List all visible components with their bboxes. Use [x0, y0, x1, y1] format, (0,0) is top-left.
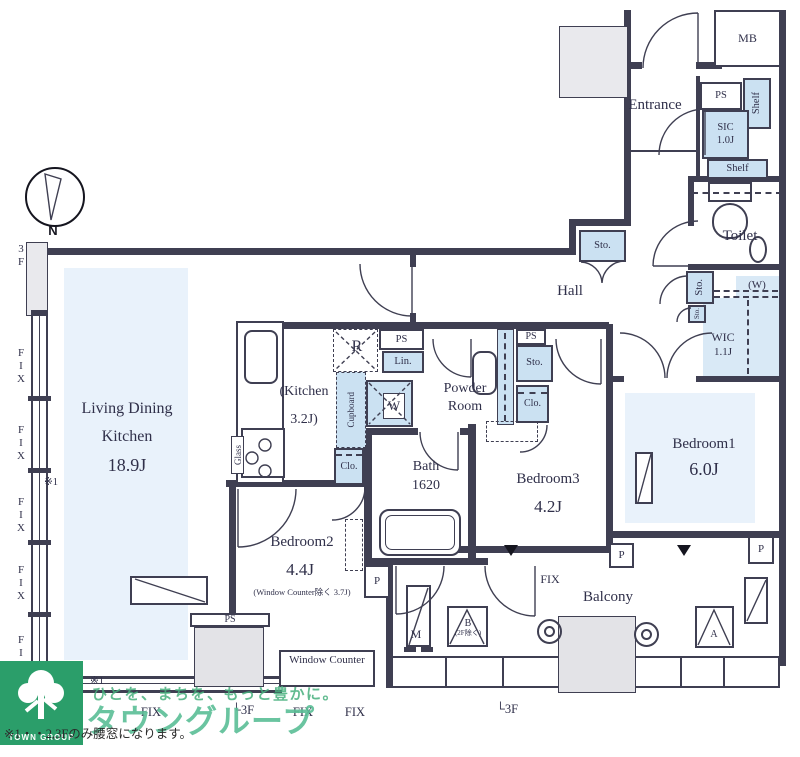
shelf-label: Shelf [726, 163, 748, 175]
floor-plan: PS Window Counter MB PS Shelf SIC 1.0J S… [0, 0, 800, 757]
floor-marker: └3F [488, 703, 526, 717]
wall [46, 248, 576, 255]
window-glass-line [39, 316, 40, 690]
stove [241, 428, 285, 478]
linen-closet: Lin. [382, 351, 424, 373]
fix-marker: FIX [10, 347, 26, 386]
ldk-label-2: Kitchen [67, 428, 187, 446]
powder-label-2: Room [415, 399, 515, 414]
sic-size: 1.0J [717, 135, 734, 147]
hanger-dash [518, 392, 547, 394]
wall [456, 546, 610, 553]
wall [779, 10, 786, 666]
pillar-p: P [609, 543, 634, 568]
kitchen-sink [244, 330, 278, 384]
fix-marker: FIX [10, 564, 26, 603]
sto-label: Sto. [693, 308, 701, 319]
wall [688, 176, 694, 226]
hall-storage: Sto. [579, 230, 626, 262]
hanger-pipe-dash [714, 290, 778, 292]
window-mullion [28, 468, 51, 473]
panel [635, 452, 653, 504]
bedroom3-label: Bedroom3 [498, 471, 598, 488]
sto-label: Sto. [594, 240, 611, 252]
panel-foot [421, 647, 433, 652]
wic-size: 1.1J [703, 346, 743, 358]
panel-foot [404, 647, 416, 652]
sic-closet: SIC 1.0J [702, 110, 749, 159]
window-mullion [28, 540, 51, 545]
window-counter: Window Counter [279, 650, 375, 687]
ps-duct: PS [700, 82, 742, 110]
pillar [26, 242, 48, 316]
drain-inner [641, 629, 652, 640]
floor-marker: 3F [12, 243, 26, 269]
entry-marker-icon [677, 545, 691, 556]
toilet-label: Toilet [698, 228, 782, 245]
mirror-label: M [408, 628, 424, 641]
washer-chip: W [383, 393, 405, 419]
ps-label: PS [715, 90, 727, 101]
counter-dashed [486, 421, 538, 442]
storage-small: Sto. [688, 305, 706, 323]
note1-marker: ※1 [38, 477, 64, 489]
p-label: P [758, 544, 764, 556]
wall [606, 324, 613, 553]
sic-label: SIC [717, 122, 733, 134]
fix-marker: FIX [534, 573, 566, 586]
bath-label: Bath [398, 459, 454, 474]
stair-shaft [559, 26, 628, 98]
glass-label: Glass [233, 445, 243, 465]
pillar-p: P [364, 565, 390, 598]
fix-marker: FIX [10, 496, 26, 535]
wall [468, 424, 476, 561]
hatch-a [695, 606, 734, 648]
window-cap [31, 310, 48, 315]
clo-label: Clo. [524, 398, 541, 410]
bathtub [379, 509, 461, 556]
lin-label: Lin. [394, 356, 411, 368]
wall [229, 487, 236, 618]
entrance-label: Entrance [605, 97, 705, 114]
storage: Sto. [516, 345, 553, 382]
entry-marker-icon [504, 545, 518, 556]
tree-icon [0, 661, 83, 731]
bathtub-inner [385, 515, 455, 550]
hanger-dash [336, 454, 362, 456]
kitchen-label: (Kitchen [272, 384, 336, 399]
meter-box: MB [714, 10, 781, 67]
sto-label: Sto. [694, 279, 706, 296]
p-label: P [618, 550, 624, 562]
toilet-shelf-dash [692, 192, 782, 194]
glass-top-label-box: Glass [231, 436, 244, 474]
kitchen-size: 3.2J) [282, 412, 326, 427]
rail-divider [445, 658, 447, 686]
door-post [410, 313, 416, 324]
wall [364, 428, 372, 565]
hall-label: Hall [535, 283, 605, 300]
hatch-b-label: B [458, 618, 478, 629]
partition-panel [744, 577, 768, 624]
cupboard-label: Cupboard [346, 392, 356, 428]
ps-label: PS [224, 615, 235, 626]
door-post [410, 255, 416, 267]
drain [537, 619, 562, 644]
mb-label: MB [738, 32, 757, 45]
ldk-size: 18.9J [67, 456, 187, 476]
fix-marker: FIX [10, 424, 26, 463]
shelf: Shelf [707, 159, 768, 179]
brand-tagline: ひとを、まちを、もっと豊かに。 [92, 687, 332, 704]
hatch-b-note: (2F除く) [446, 630, 490, 638]
bedroom2-note: (Window Counter除く 3.7J) [240, 588, 364, 597]
window-mullion [28, 396, 51, 401]
compass-n-label: N [45, 224, 61, 238]
bedroom1-label: Bedroom1 [656, 436, 752, 453]
storage: Sto. [686, 271, 714, 304]
bedroom2-label: Bedroom2 [252, 534, 352, 551]
wall [284, 322, 609, 329]
rail-divider [502, 658, 504, 686]
ps-label: PS [396, 334, 408, 345]
shaft-box [194, 627, 264, 687]
compass-icon [25, 167, 85, 227]
washer-label: W [388, 398, 400, 414]
fridge-label: R [346, 338, 368, 356]
balcony-box [558, 616, 636, 693]
bath-size: 1620 [398, 478, 454, 493]
bedroom1-size: 6.0J [664, 460, 744, 480]
closet: Clo. [516, 385, 549, 423]
rail-divider [680, 658, 682, 686]
ldk-label-1: Living Dining [67, 400, 187, 418]
wall [569, 219, 630, 226]
wall [696, 376, 782, 382]
hatch-a-label: A [706, 629, 722, 640]
entrance-step-line [628, 150, 696, 152]
hanger-pipe-dash [714, 296, 778, 298]
window-counter-label: Window Counter [289, 655, 365, 667]
wall [688, 264, 783, 270]
shelf-label: Shelf [751, 92, 763, 114]
drain [634, 622, 659, 647]
sto-label: Sto. [526, 357, 543, 369]
ps-duct: PS [379, 329, 424, 350]
ps-label: PS [525, 332, 536, 343]
wall [368, 428, 418, 435]
wic-label: WIC [701, 331, 745, 344]
footnote: ※1・・2,3Fのみ腰窓になります。 [4, 728, 234, 742]
sideboard [130, 576, 208, 605]
ps-duct: PS [190, 613, 270, 627]
rail-divider [723, 658, 725, 686]
pillar-p: P [748, 536, 774, 564]
window-mullion [28, 612, 51, 617]
bedroom2-size: 4.4J [268, 561, 332, 580]
p-label: P [374, 576, 380, 588]
bedroom3-size: 4.2J [506, 498, 590, 517]
balcony-label: Balcony [570, 589, 646, 606]
ps-duct: PS [516, 329, 546, 345]
drain-inner [544, 626, 555, 637]
cupboard: Cupboard [336, 372, 366, 448]
powder-label-1: Powder [415, 381, 515, 396]
clo-label: Clo. [341, 461, 358, 473]
wic-dash [747, 300, 749, 374]
